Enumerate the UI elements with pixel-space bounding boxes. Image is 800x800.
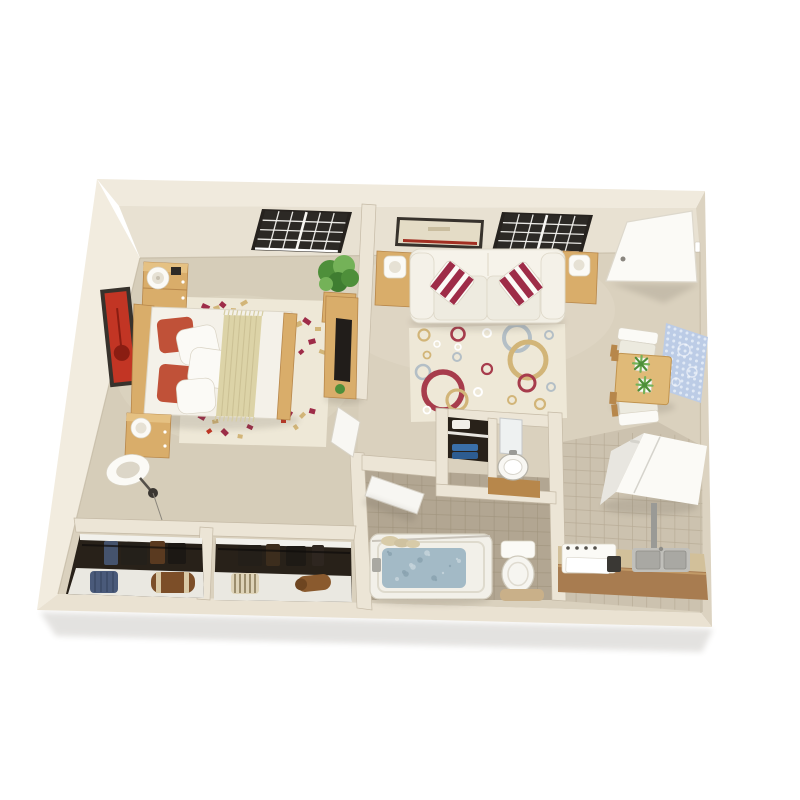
blue-rug-dot [668, 326, 671, 329]
sink-faucet [659, 547, 663, 551]
table-leg [611, 350, 619, 361]
blue-rug-dot [696, 348, 699, 351]
hanging-garment [168, 543, 186, 564]
plant-foliage [341, 269, 359, 287]
bed [131, 304, 297, 422]
wall-bath-core-divider [488, 418, 497, 480]
water-speckle [442, 572, 444, 574]
blue-rug-dot [691, 396, 694, 399]
table-plant-2 [636, 377, 653, 394]
floorplan-page [0, 0, 800, 800]
table-lamp-shade-inner [389, 261, 401, 273]
blue-towel [452, 452, 478, 459]
blue-rug-dot [682, 362, 685, 365]
water-speckle [435, 579, 437, 581]
hanging-garment [150, 541, 165, 564]
kitchen-pipe [651, 503, 657, 551]
white-pillow-3 [176, 377, 217, 414]
bathtub [370, 534, 492, 599]
blue-rug-dot [693, 378, 696, 381]
blue-rug-dot [704, 338, 707, 341]
blue-rug-dot [667, 332, 670, 335]
tv-screen [334, 318, 352, 382]
range-knob [575, 546, 579, 550]
hanging-garment [104, 541, 118, 565]
water-speckle [417, 557, 423, 563]
hanging-garment [286, 546, 306, 566]
drawer-knob [163, 430, 166, 433]
blue-rug-dot [680, 330, 683, 333]
wall-outlet [695, 242, 700, 252]
blue-rug-dot [686, 332, 689, 335]
duffel-strap-right [184, 572, 189, 593]
nightstand-bottom [125, 413, 171, 458]
rug-confetti-piece [237, 434, 243, 439]
console-plant [335, 384, 345, 394]
sink-basin-left [636, 551, 660, 569]
bedroom-window [251, 209, 352, 253]
range-knob [593, 546, 597, 550]
water-speckle [428, 554, 430, 556]
blue-rug-dot [679, 336, 682, 339]
blue-rug-dot [702, 356, 705, 359]
living-window [492, 212, 593, 254]
hanging-garment [266, 544, 280, 566]
blue-rug-dot [702, 350, 705, 353]
water-speckle [449, 565, 451, 567]
blue-rug-dot [699, 380, 702, 383]
blue-rug-dot [666, 338, 669, 341]
kitchen-counter [558, 544, 708, 600]
blue-rug-dot [690, 346, 693, 349]
tub-faucet [372, 558, 381, 572]
blue-rug-dot [685, 394, 688, 397]
blue-rug-dot [671, 352, 674, 355]
blue-rug-dot [698, 336, 701, 339]
blue-rug-dot [680, 386, 683, 389]
blue-rug-dot [673, 334, 676, 337]
hanging-garment [312, 545, 324, 566]
water-speckle [395, 577, 399, 581]
plant-foliage [319, 277, 333, 291]
toilet-bowl [502, 556, 534, 592]
blue-rug-dot [692, 390, 695, 393]
vanity-faucet [509, 450, 517, 455]
vanity-mirror [500, 418, 522, 455]
blue-rug-dot [697, 398, 700, 401]
sofa-arm-right [541, 253, 565, 319]
blue-rug-dot [682, 368, 685, 371]
blue-rug-dot [676, 366, 679, 369]
blue-towel [452, 444, 478, 451]
drawer-knob [181, 296, 184, 299]
rug-living-circles [409, 324, 567, 422]
blue-rug-dot [688, 364, 691, 367]
wall-bath-core-left [436, 408, 448, 496]
blue-rug-dot [692, 334, 695, 337]
blue-rug-dot [701, 362, 704, 365]
table-leg [609, 392, 617, 404]
entry-door-knob [621, 257, 626, 262]
blue-rug-dot [698, 392, 701, 395]
blue-rug-dot [700, 368, 703, 371]
end-table-left [375, 251, 414, 307]
blue-rug-dot [672, 340, 675, 343]
table-lamp-finial [156, 276, 160, 280]
table-plant-1 [633, 355, 650, 372]
water-speckle [388, 552, 392, 556]
blue-rug-dot [679, 392, 682, 395]
end-table-right [561, 251, 598, 304]
blue-rug-dot [695, 360, 698, 363]
blue-rug-dot [681, 374, 684, 377]
range-towel [566, 557, 610, 574]
drawer-knob [163, 444, 166, 447]
table-lamp-shade-inner [574, 260, 585, 271]
blue-rug-dot [675, 372, 678, 375]
shower-curtain [406, 540, 420, 548]
blue-rug-dot [672, 346, 675, 349]
water-speckle [403, 571, 409, 577]
tv-console [324, 296, 358, 399]
dining-table [608, 350, 672, 408]
sink-basin-right [664, 551, 686, 569]
blue-rug-dot [685, 338, 688, 341]
blue-rug-dot [665, 350, 668, 353]
blue-rug-dot [686, 388, 689, 391]
blue-rug-dot [676, 360, 679, 363]
range-pot [607, 556, 621, 572]
bath-mat [500, 589, 544, 601]
blue-rug-dot [686, 382, 689, 385]
blue-rug-dot [692, 384, 695, 387]
blue-rug-dot [703, 344, 706, 347]
rug-confetti-piece [315, 327, 321, 331]
water-speckle [457, 559, 461, 563]
blue-rug-dot [697, 342, 700, 345]
blue-rug-dot [684, 350, 687, 353]
range-knob [584, 546, 588, 550]
chair-leg [611, 404, 618, 417]
table-lamp-shade-inner [136, 423, 147, 434]
drawer-knob [181, 280, 184, 283]
range-knob [566, 546, 570, 550]
linen-closet [448, 417, 488, 462]
art-detail [428, 227, 450, 231]
sofa [410, 249, 565, 323]
blue-rug-dot [691, 340, 694, 343]
water-speckle [410, 564, 416, 570]
linen-white-box [452, 420, 470, 429]
blue-rug-dot [698, 386, 701, 389]
hanging-garment [238, 545, 262, 566]
white-pillow [176, 377, 217, 414]
living-wall-art [395, 217, 484, 249]
alarm-clock [171, 267, 181, 275]
blue-rug-dot [678, 342, 681, 345]
blue-rug-dot [666, 344, 669, 347]
vanity-sink-basin [504, 460, 522, 475]
blue-rug-dot [700, 374, 703, 377]
blue-rug-dot [673, 390, 676, 393]
blue-rug-dot [696, 354, 699, 357]
blue-rug-dot [680, 380, 683, 383]
toilet [501, 541, 535, 592]
blue-rug-dot [689, 358, 692, 361]
floorplan-render [0, 0, 800, 800]
duffel-strap-left [156, 572, 161, 593]
tub-water [382, 548, 466, 588]
blue-rug-dot [674, 328, 677, 331]
